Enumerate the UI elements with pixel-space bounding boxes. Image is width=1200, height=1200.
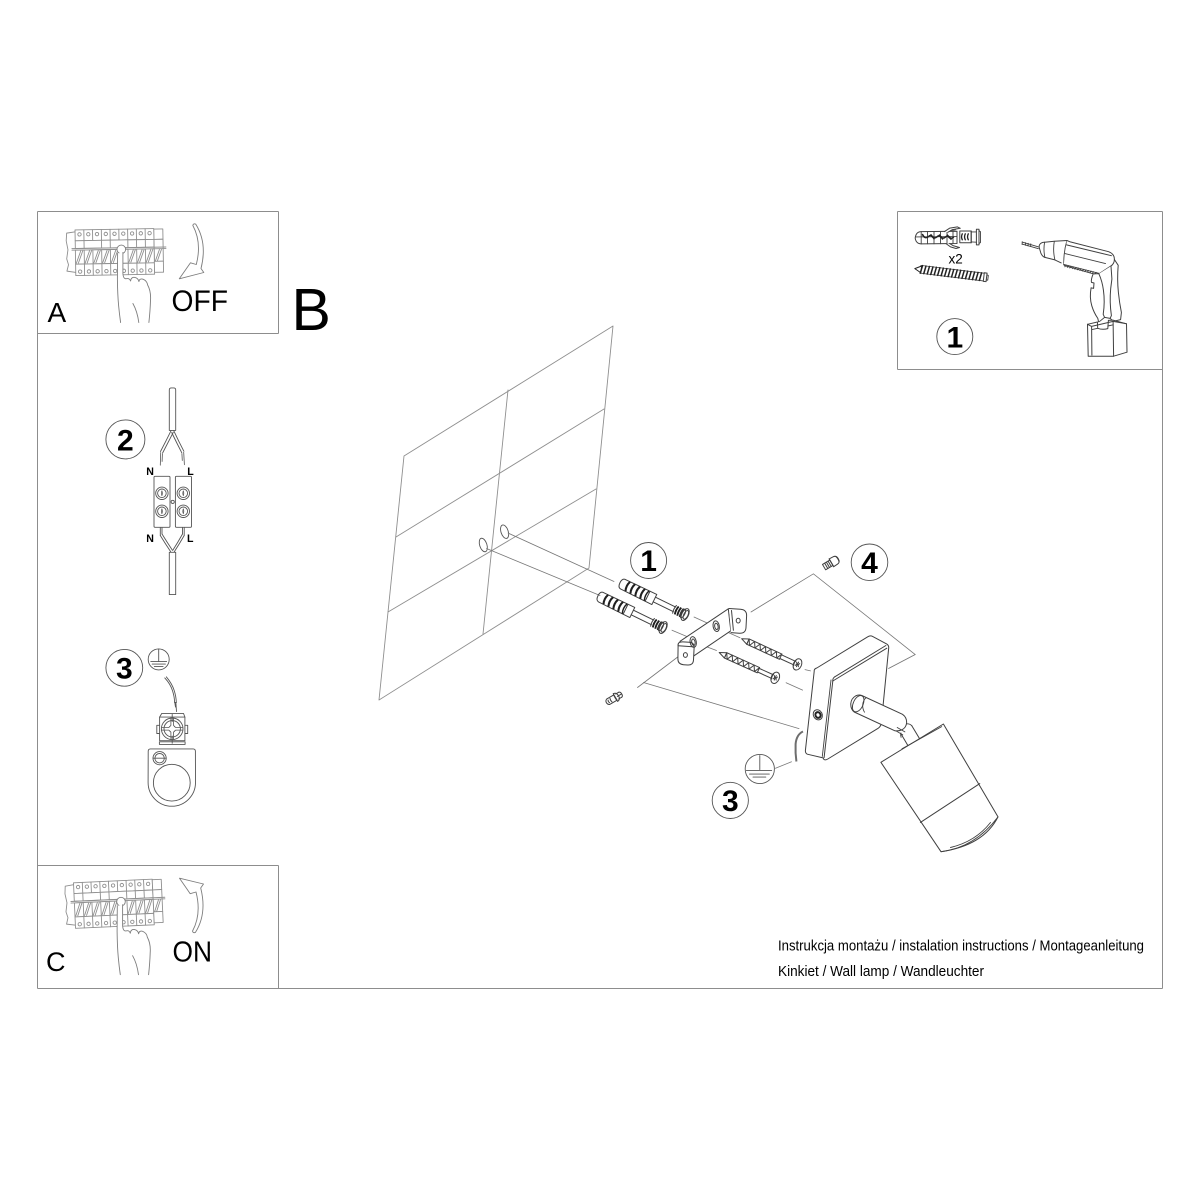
svg-text:N: N [146,533,154,545]
svg-text:ON: ON [173,937,213,969]
svg-text:3: 3 [722,785,739,818]
svg-text:3: 3 [116,653,133,686]
svg-text:B: B [292,277,331,343]
svg-text:x2: x2 [949,252,963,267]
svg-text:1: 1 [640,545,657,578]
svg-text:4: 4 [861,547,878,580]
svg-text:1: 1 [946,321,963,354]
svg-text:Kinkiet / Wall lamp / Wandleuc: Kinkiet / Wall lamp / Wandleuchter [778,963,984,980]
svg-text:Instrukcja montażu / instalati: Instrukcja montażu / instalation instruc… [778,938,1144,955]
svg-text:L: L [187,533,194,545]
svg-text:A: A [48,297,67,328]
svg-text:N: N [146,466,154,478]
svg-text:OFF: OFF [172,285,229,318]
svg-text:C: C [46,947,66,977]
svg-text:2: 2 [117,424,134,457]
